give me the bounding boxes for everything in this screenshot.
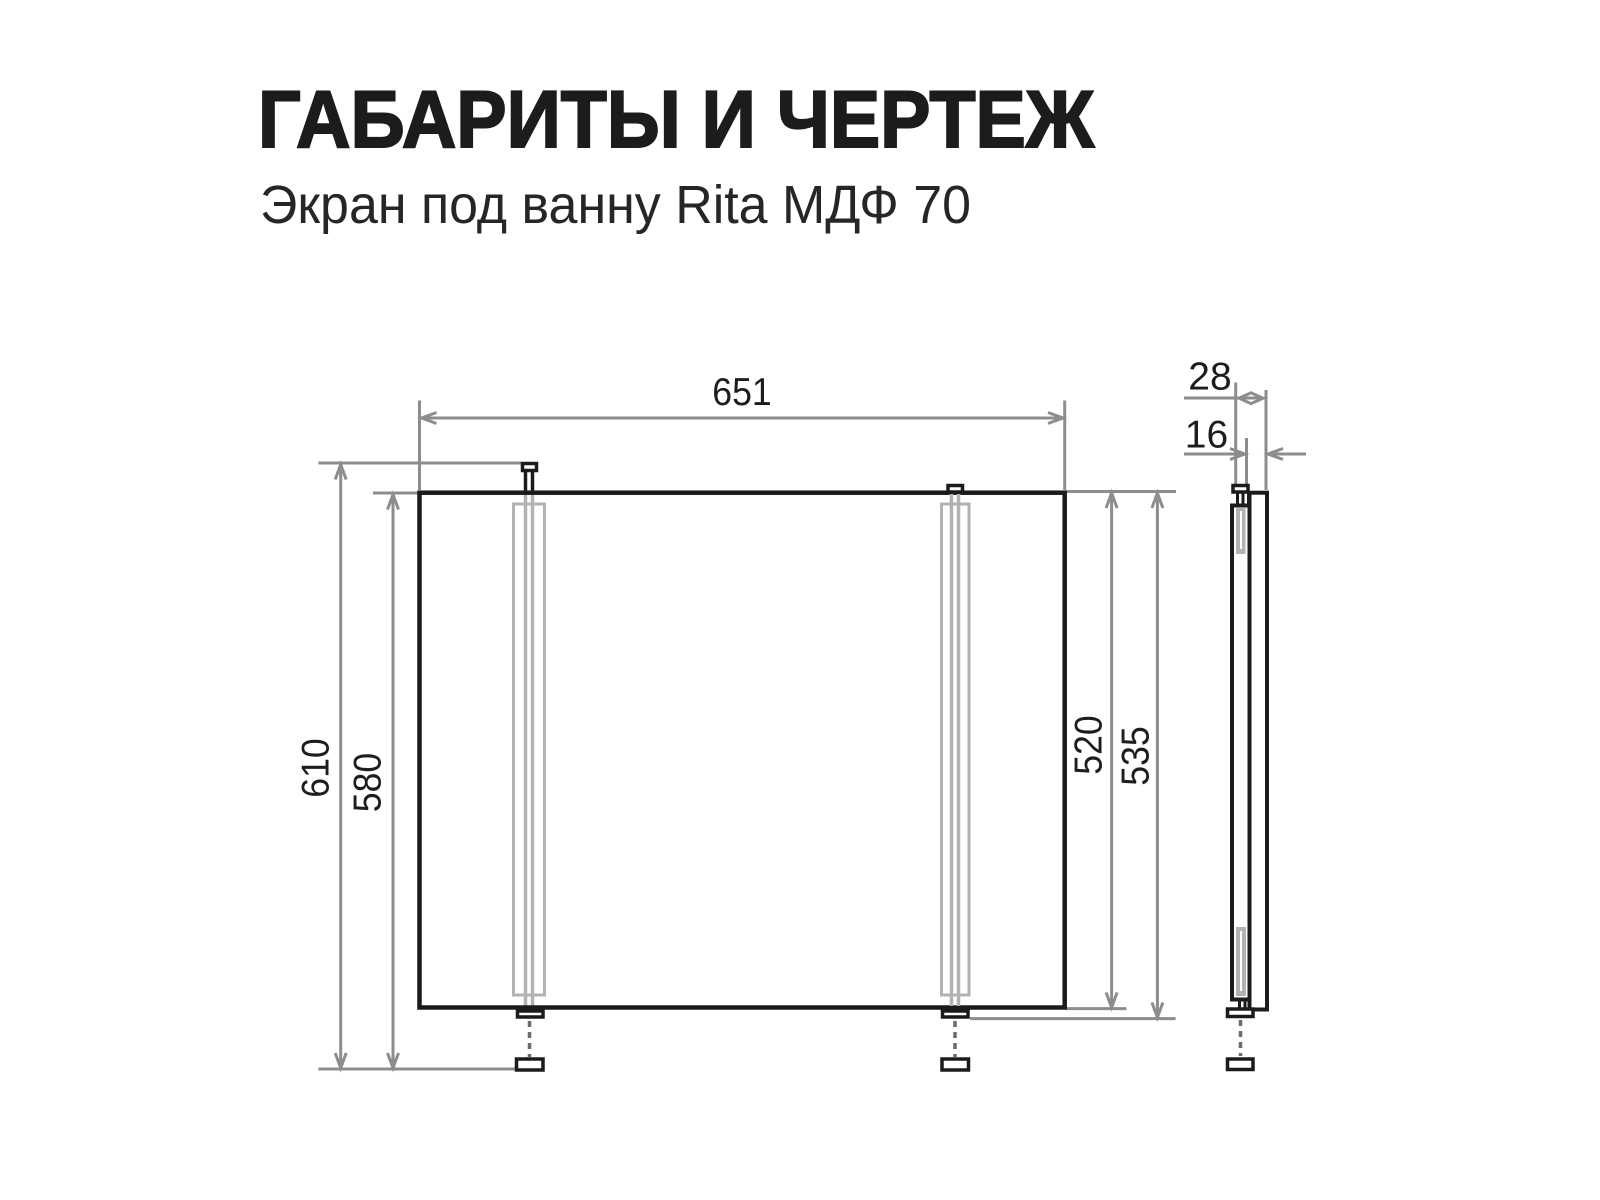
svg-text:520: 520 [1068, 715, 1111, 775]
svg-text:651: 651 [712, 371, 772, 414]
svg-text:28: 28 [1188, 356, 1231, 399]
svg-text:Экран под ванну Rita МДФ 70: Экран под ванну Rita МДФ 70 [260, 175, 971, 235]
svg-text:535: 535 [1115, 726, 1158, 786]
svg-text:ГАБАРИТЫ И ЧЕРТЕЖ: ГАБАРИТЫ И ЧЕРТЕЖ [258, 75, 1095, 165]
svg-text:610: 610 [295, 738, 338, 798]
svg-text:16: 16 [1185, 414, 1228, 457]
svg-text:580: 580 [347, 753, 390, 813]
